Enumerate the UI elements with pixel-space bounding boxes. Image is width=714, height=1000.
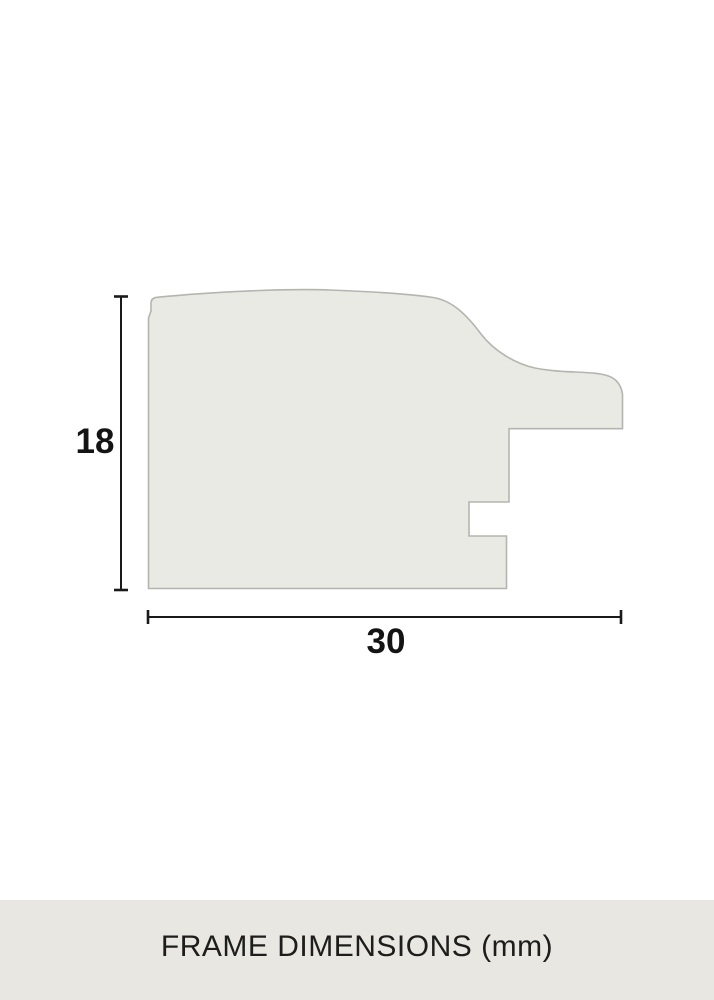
height-dimension-line xyxy=(114,297,128,591)
product-diagram-page: 18 30 FRAME DIMENSIONS (mm) xyxy=(0,0,714,1000)
footer-caption-text: FRAME DIMENSIONS (mm) xyxy=(161,930,553,964)
width-dimension-value: 30 xyxy=(367,622,406,661)
frame-profile-diagram: 18 30 xyxy=(0,0,714,900)
frame-profile-shape xyxy=(149,290,623,589)
footer-caption-bar: FRAME DIMENSIONS (mm) xyxy=(0,900,714,1000)
height-dimension-value: 18 xyxy=(76,422,115,461)
